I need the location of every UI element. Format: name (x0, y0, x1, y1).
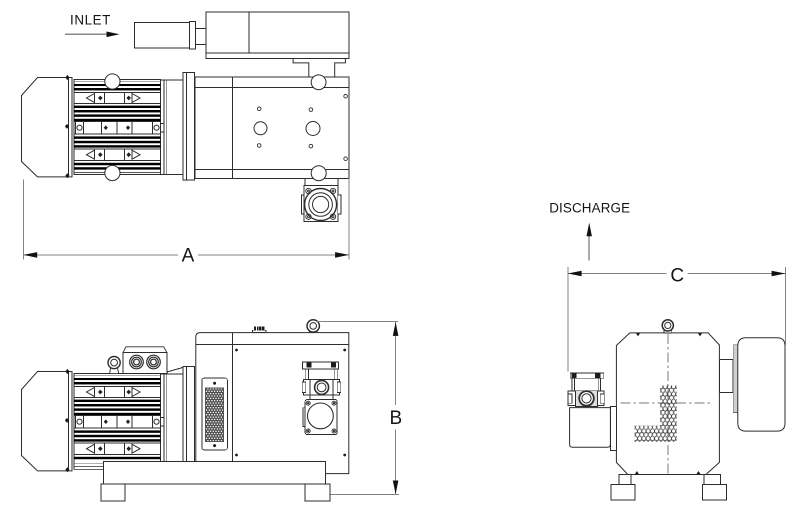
svg-text:B: B (390, 408, 403, 429)
svg-text:INLET: INLET (70, 13, 111, 28)
svg-text:C: C (670, 265, 684, 286)
svg-text:A: A (182, 246, 195, 267)
svg-text:DISCHARGE: DISCHARGE (549, 200, 630, 215)
